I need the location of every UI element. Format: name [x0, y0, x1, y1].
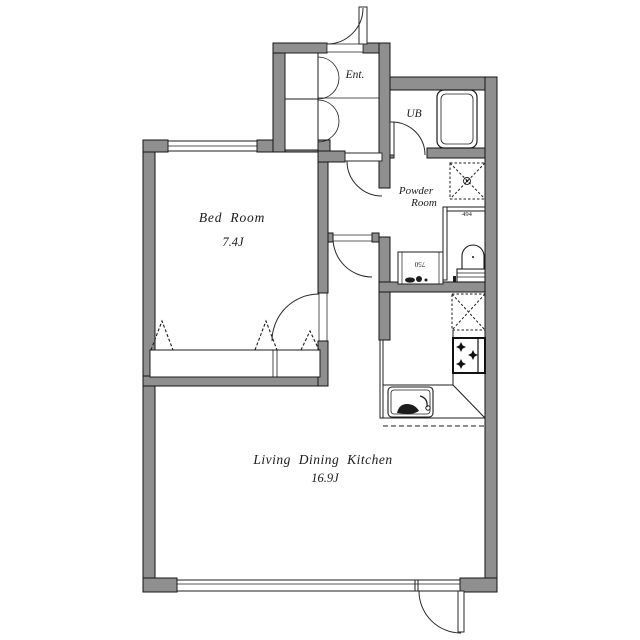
wall-ub-south	[427, 148, 485, 158]
wall-hall-door-right	[372, 233, 379, 242]
wall-bedroom-east-upper	[318, 152, 328, 293]
closet-body	[150, 350, 320, 377]
wall-column-west-upper	[379, 43, 390, 188]
ldk-label: Living Dining Kitchen	[252, 452, 392, 467]
corridor-door-swing	[333, 238, 372, 277]
shoe-cabinet	[285, 53, 318, 150]
wall-bottom-right	[460, 578, 497, 592]
toilet-bowl-dot	[472, 256, 474, 258]
wall-bedroom-top-left	[143, 140, 168, 152]
floor-plan-drawing: Ent. UB Powder Room Bed Room 7.4J Living…	[0, 0, 640, 640]
balcony-door-swing	[419, 591, 461, 633]
ldk-area-label: 16.9J	[311, 471, 340, 485]
wall-entrance-top-left	[273, 43, 327, 53]
entrance-door-threshold	[327, 44, 363, 52]
wall-bottom-left	[143, 578, 177, 592]
counter-corner-seam	[453, 385, 485, 418]
hanger-mark-3	[301, 331, 319, 350]
balcony-door-leaf	[458, 591, 464, 632]
floor-plan: Ent. UB Powder Room Bed Room 7.4J Living…	[0, 0, 640, 640]
wall-right	[485, 77, 497, 592]
wall-entrance-west	[273, 43, 285, 152]
closet-hanger-rack	[151, 321, 319, 350]
toilet-tank	[457, 269, 485, 282]
ub-door-leaf	[390, 122, 394, 155]
kitchen-side-panel	[380, 340, 383, 418]
toilet-plumbing	[453, 276, 456, 282]
toilet-dimension-label: 494	[462, 211, 473, 218]
vanity-faucet-blob	[405, 277, 415, 282]
wall-top-right	[390, 77, 497, 90]
hanger-mark-2	[255, 321, 277, 350]
unit-bath-fixtures	[437, 90, 477, 148]
washer-drain-inner	[466, 180, 468, 182]
ub-door-swing	[392, 122, 425, 155]
powder-room-label-line1: Powder	[398, 185, 434, 197]
vanity-dimension-label: 750	[414, 260, 425, 268]
toilet-nook-wall-left	[443, 207, 447, 280]
kitchen-fixtures	[383, 294, 485, 426]
unit-bath-label: UB	[406, 108, 421, 120]
toilet	[453, 245, 485, 282]
wall-hall-south	[318, 151, 345, 162]
gas-stove	[453, 338, 485, 373]
vanity-handle	[425, 279, 428, 282]
partitions	[380, 207, 485, 418]
powder-room-fixtures	[398, 163, 485, 284]
bathtub	[437, 90, 477, 148]
entrance-fixtures	[285, 53, 379, 150]
powder-room-label-line2: Room	[410, 197, 437, 209]
bedroom-door-swing	[272, 294, 319, 341]
bedroom-label: Bed Room	[199, 210, 265, 225]
shoe-cabinet-door-swing-bottom	[318, 100, 339, 142]
vanity-faucet	[416, 276, 422, 282]
closet	[150, 321, 320, 377]
entrance-door-swing	[327, 8, 363, 44]
kitchen-sink	[388, 387, 433, 417]
bedroom-area-label: 7.4J	[222, 235, 245, 249]
refrigerator-space	[452, 294, 485, 330]
wall-hall-door-left	[328, 233, 333, 242]
shoe-cabinet-door-swing-top	[318, 57, 339, 99]
entrance-label: Ent.	[345, 69, 365, 81]
hall-door-swing	[347, 161, 382, 196]
hall-door-leaf	[345, 153, 382, 161]
